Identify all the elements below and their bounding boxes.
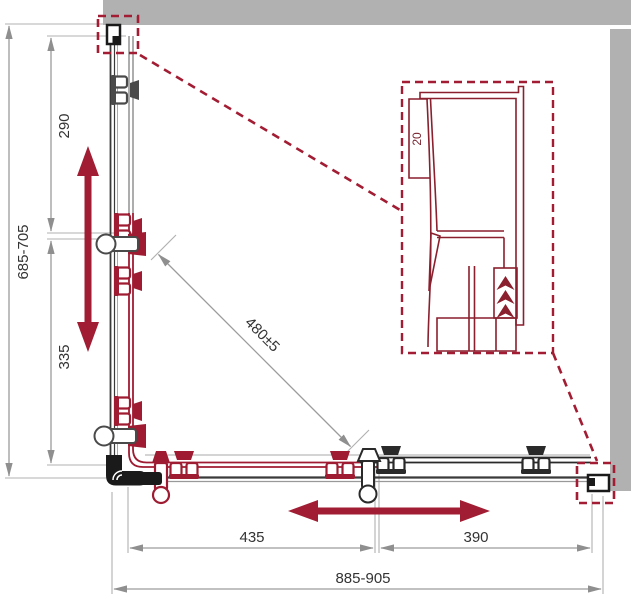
- drawing-canvas: 685-705 290 335 480±5 435 390 885-905: [0, 0, 631, 600]
- dim-label-diagonal: 480±5: [241, 314, 282, 355]
- bottom-door-handle-black: [358, 449, 380, 503]
- dim-label-left-upper: 290: [56, 113, 73, 138]
- detail-seal-wedge: [429, 233, 440, 291]
- shower-enclosure-technical-drawing: 685-705 290 335 480±5 435 390 885-905: [0, 0, 631, 600]
- roller-icon: [111, 75, 139, 105]
- wall-bracket-bottom-right: [588, 475, 609, 491]
- detail-glass-line: [427, 99, 431, 347]
- wall-bracket-top: [107, 25, 120, 44]
- slide-arrow-vertical-icon: [77, 146, 99, 352]
- dim-label-bottom-total: 885-905: [335, 570, 390, 587]
- wall-top: [103, 0, 631, 25]
- detail-callouts: [98, 16, 614, 503]
- callout-leader-bottom: [553, 353, 597, 461]
- left-door-assembly: [95, 25, 378, 467]
- callout-leader-top: [140, 55, 400, 210]
- left-fixed-glass-line: [129, 36, 133, 213]
- detail-profile-drawing: [409, 87, 524, 352]
- dim-label-detail-gap: 20: [410, 132, 424, 146]
- dim-label-bottom-left: 435: [239, 529, 264, 546]
- dim-line-diagonal: [159, 255, 351, 447]
- dim-label-left-lower: 335: [56, 344, 73, 369]
- dim-label-bottom-right: 390: [463, 529, 488, 546]
- left-sliding-door-rail: [129, 213, 377, 467]
- roller-icon: [114, 266, 142, 296]
- bottom-door-assembly: [132, 446, 609, 503]
- detail-view-box: [402, 82, 553, 353]
- wall-right: [610, 29, 631, 491]
- dimension-lines: [9, 26, 601, 589]
- roller-icon: [521, 446, 551, 474]
- slide-arrow-horizontal-icon: [288, 500, 490, 522]
- adjustment-chevrons-icon: [497, 276, 515, 318]
- dim-label-left-total: 685-705: [15, 224, 32, 279]
- roller-icon: [114, 396, 142, 426]
- left-door-handle-lower: [95, 424, 147, 448]
